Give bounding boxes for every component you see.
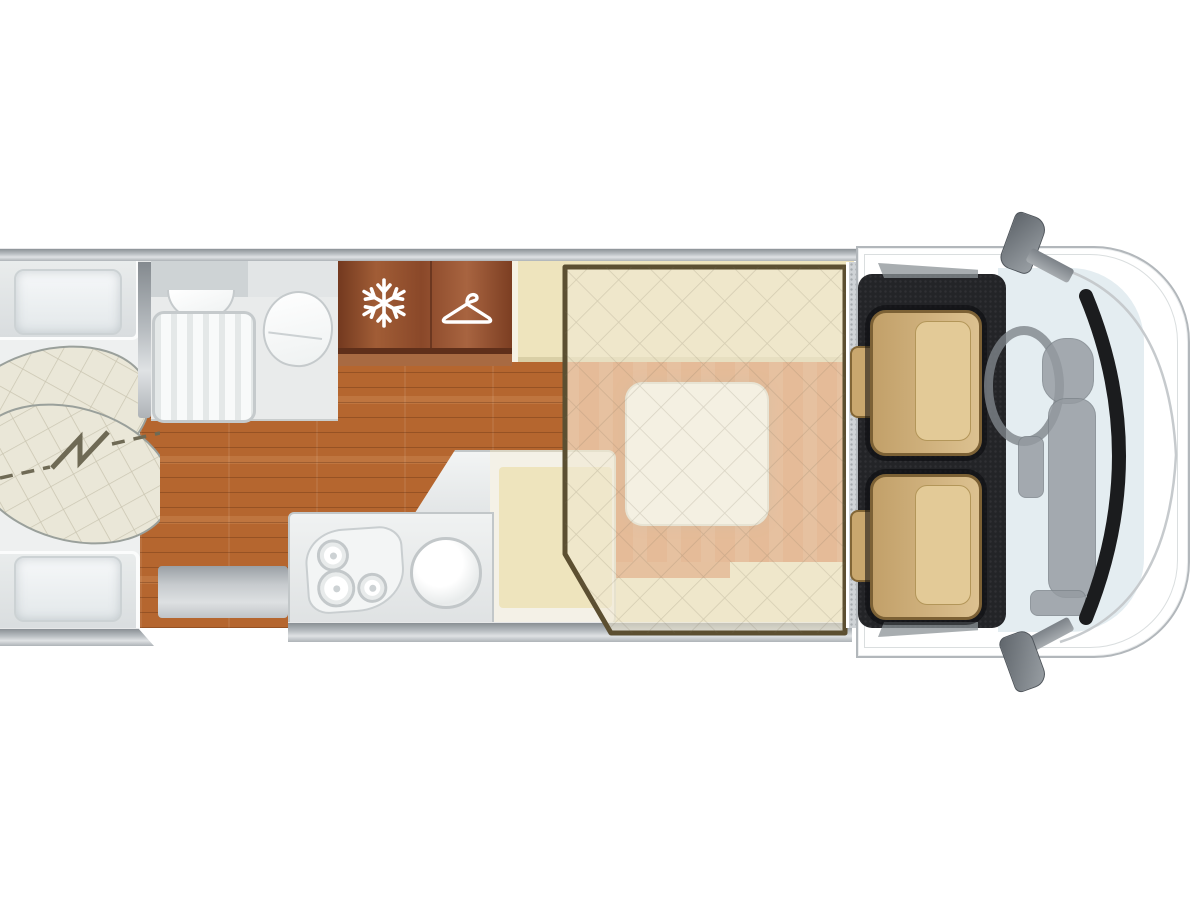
bathroom-wall <box>138 261 151 418</box>
passenger-seat <box>848 310 978 450</box>
pillow-bottom <box>14 556 122 622</box>
shower-tray <box>152 311 256 423</box>
hob-burner-large <box>316 568 357 609</box>
floorplan-canvas <box>0 0 1200 900</box>
hob-burner-small-right <box>356 572 388 604</box>
snowflake-icon <box>358 276 410 330</box>
driver-seat <box>848 474 978 614</box>
bottom-wall-rear <box>0 628 154 646</box>
entry-step <box>158 566 288 618</box>
windshield-arc <box>1030 260 1190 650</box>
kitchen-sink <box>410 537 482 609</box>
rear-mattress <box>0 326 160 564</box>
hob-burner-small-top <box>316 538 350 572</box>
hanger-icon <box>438 286 496 328</box>
cabinet-ledge <box>338 353 512 366</box>
drop-down-bed-overlay <box>555 258 855 642</box>
